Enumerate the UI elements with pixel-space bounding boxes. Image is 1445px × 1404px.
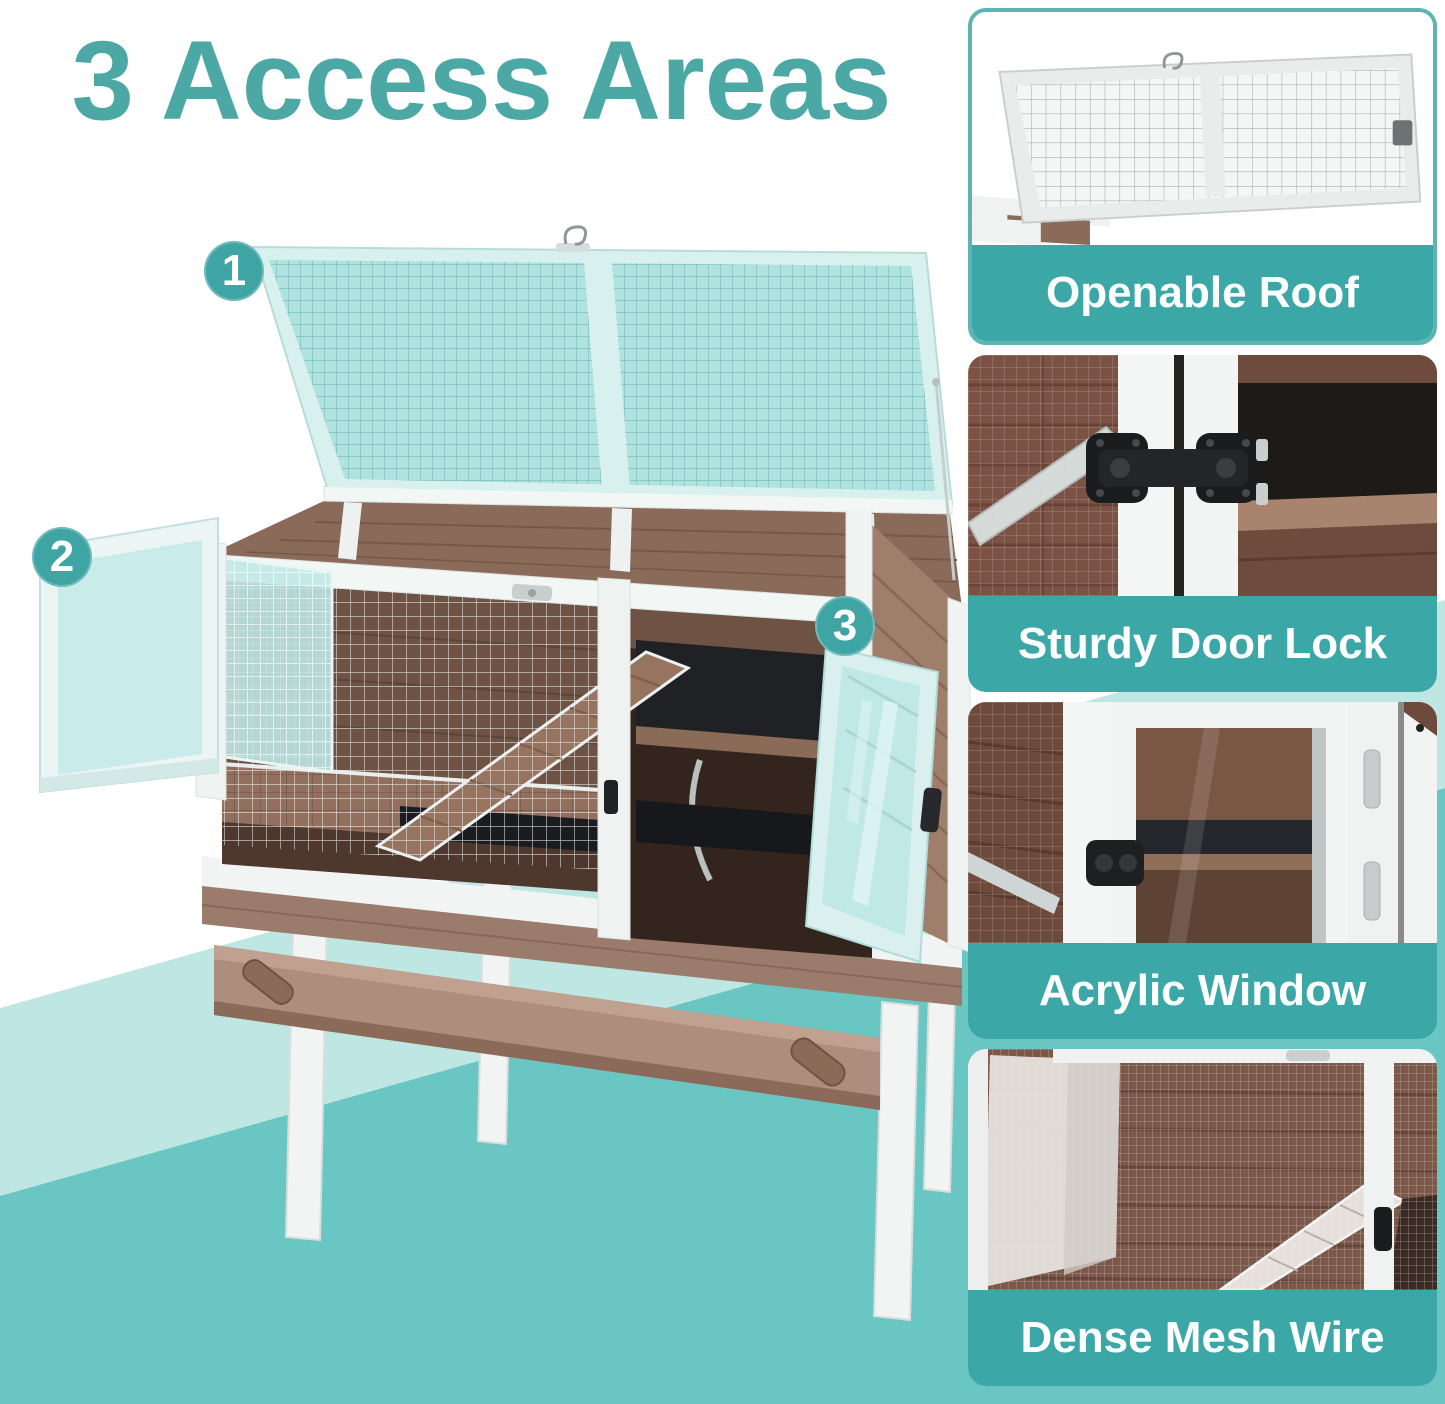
feature-caption: Dense Mesh Wire <box>968 1290 1437 1386</box>
feature-card-dense-mesh-wire: Dense Mesh Wire <box>968 1049 1437 1386</box>
acrylic-window-photo <box>968 702 1437 943</box>
window-hinge-icon <box>1086 840 1144 886</box>
dense-mesh-wire-photo <box>968 1049 1437 1290</box>
feature-card-acrylic-window: Acrylic Window <box>968 702 1437 1039</box>
marker-3: 3 <box>815 596 875 656</box>
feature-caption: Openable Roof <box>972 245 1433 341</box>
marker-2-number: 2 <box>50 532 74 581</box>
product-infographic: 3 Access Areas 1 2 3 <box>0 0 1445 1404</box>
marker-1-number: 1 <box>222 246 246 295</box>
marker-3-number: 3 <box>833 601 857 650</box>
feature-caption: Sturdy Door Lock <box>968 596 1437 692</box>
page-title: 3 Access Areas <box>0 26 963 136</box>
feature-card-sturdy-door-lock: Sturdy Door Lock <box>968 355 1437 692</box>
feature-caption: Acrylic Window <box>968 943 1437 1039</box>
marker-1: 1 <box>204 241 264 301</box>
openable-roof-photo <box>972 12 1433 245</box>
feature-list: Openable Roof <box>968 8 1437 1386</box>
marker-2: 2 <box>32 527 92 587</box>
feature-card-openable-roof: Openable Roof <box>968 8 1437 345</box>
sturdy-door-lock-photo <box>968 355 1437 596</box>
right-door <box>806 646 942 962</box>
